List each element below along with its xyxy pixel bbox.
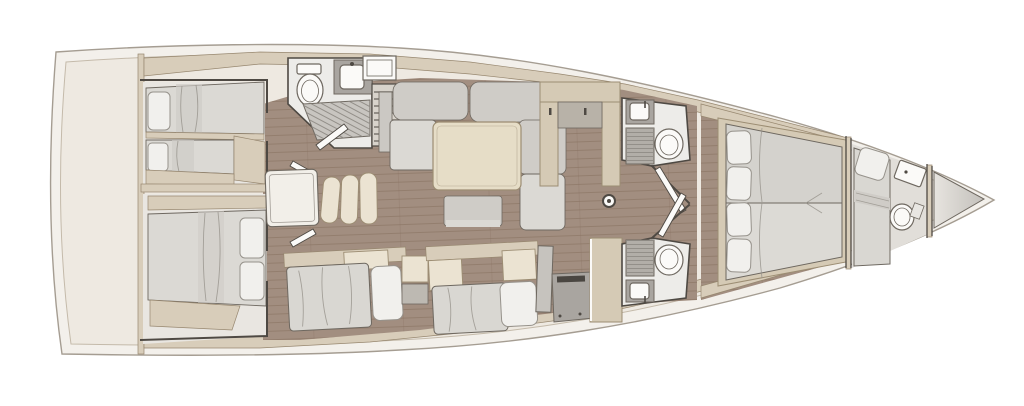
- cabinet-top: [402, 256, 428, 282]
- stacked-chair: [320, 176, 341, 223]
- chart-table: [265, 169, 319, 227]
- hatch: [363, 56, 396, 80]
- mid-cabinet: [402, 256, 428, 304]
- cabin-divider: [141, 184, 267, 192]
- headrest-box: [502, 249, 537, 281]
- back-cushion: [393, 82, 468, 120]
- handle: [584, 108, 587, 115]
- toilet: [297, 74, 323, 106]
- tall-locker: [590, 238, 622, 322]
- bow-crew-area: [852, 144, 928, 268]
- pillow: [240, 218, 264, 258]
- pillow: [726, 203, 751, 237]
- pillow: [240, 262, 264, 300]
- forepeak: [927, 164, 984, 238]
- stacked-chair: [340, 175, 359, 225]
- yacht-floorplan-image: [0, 0, 1024, 406]
- settee-forward: [426, 241, 542, 335]
- settee-aft: [284, 247, 410, 331]
- pillow: [371, 265, 404, 320]
- cabinet-base: [402, 284, 428, 304]
- fridge-column: [536, 246, 553, 312]
- vanity-recess: [558, 102, 602, 128]
- pillow: [148, 92, 170, 130]
- blanket: [172, 140, 194, 173]
- ottoman-edge: [446, 220, 500, 227]
- yacht-floorplan-page: [0, 0, 1024, 406]
- knob: [579, 313, 582, 316]
- mast-post: [603, 195, 615, 207]
- pillow: [726, 167, 751, 201]
- head-shelf: [148, 196, 266, 210]
- aft-cabin-port: [143, 82, 265, 186]
- dining-table: [433, 122, 521, 190]
- vanity-top-band: [540, 82, 620, 102]
- stove: [557, 276, 585, 283]
- pillow: [148, 143, 168, 171]
- side-shelf: [234, 136, 265, 184]
- faucet: [904, 170, 907, 173]
- stacked-chair: [360, 173, 378, 224]
- handle: [549, 108, 552, 115]
- bow-bulkhead: [846, 136, 851, 269]
- toilet: [655, 129, 683, 159]
- toilet: [655, 245, 683, 275]
- sink-basin: [340, 65, 364, 89]
- sink-basin: [630, 103, 649, 120]
- toilet-tank: [297, 64, 321, 74]
- pillow: [726, 131, 751, 165]
- settee-mattress: [432, 283, 508, 335]
- sink-basin: [630, 283, 649, 299]
- aft-cabin-starboard: [143, 194, 267, 344]
- knob: [559, 315, 562, 318]
- pillow: [726, 239, 751, 273]
- pillow: [500, 281, 538, 327]
- vanity-right-column: [602, 102, 620, 186]
- faucet: [350, 62, 354, 66]
- seat-cushion: [390, 120, 436, 170]
